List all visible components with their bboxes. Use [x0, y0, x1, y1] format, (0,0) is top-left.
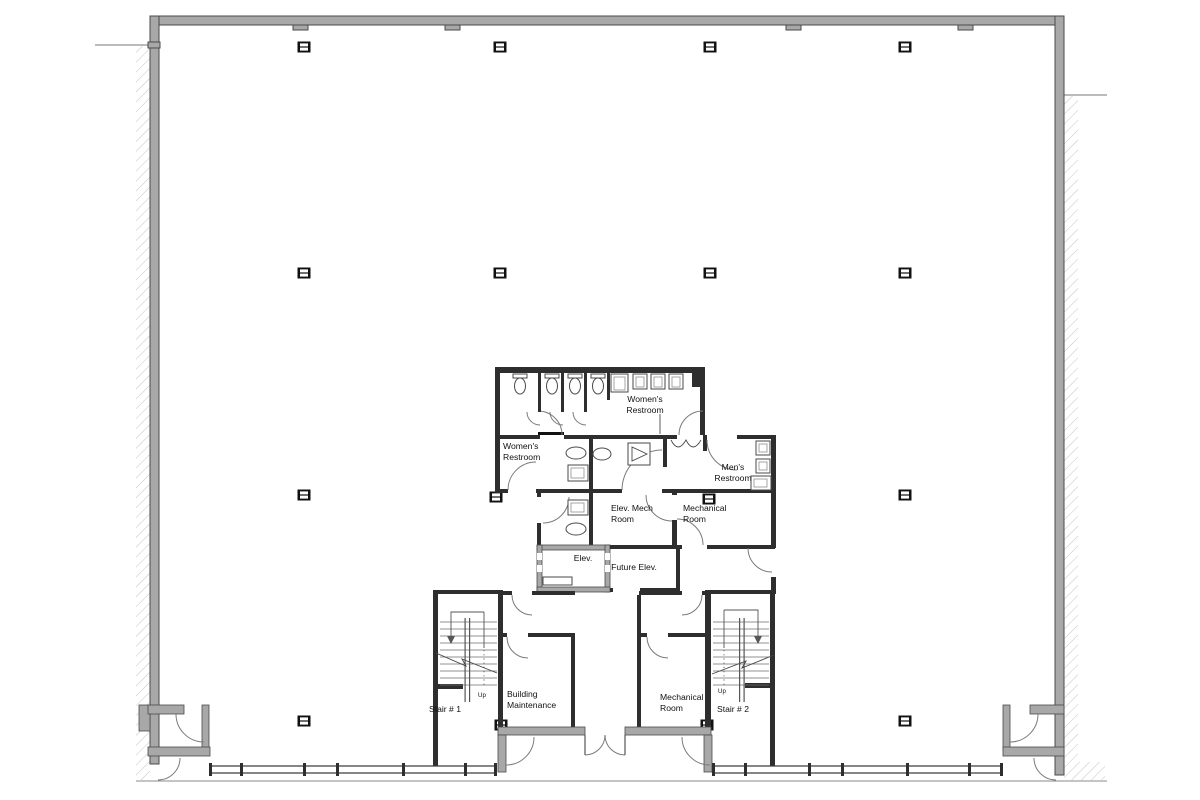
entry-wall-west	[498, 727, 585, 735]
stair-2-up-label: Up	[718, 688, 726, 695]
room-label-womens-restroom-left: Women's	[503, 441, 538, 451]
elevator-door-slot	[605, 565, 610, 572]
column-icon	[490, 492, 503, 503]
column-icon	[298, 42, 311, 53]
vestibule-door-arc	[1034, 758, 1056, 780]
stall-partition	[607, 373, 610, 400]
toilet-icon	[545, 374, 559, 378]
room-label-womens-restroom-top: Women's	[627, 394, 662, 404]
room-label-mechanical-room-upper: Room	[683, 514, 706, 524]
partition	[663, 437, 667, 467]
door-arc	[647, 637, 668, 658]
room-label-mechanical-room-upper: Mechanical	[683, 503, 727, 513]
column-icon	[899, 716, 912, 727]
room-label-mechanical-room-lower: Room	[660, 703, 683, 713]
room-label-future-elevator: Future Elev.	[611, 562, 657, 572]
stall-partition	[561, 373, 564, 412]
exterior-wall-top	[150, 16, 1063, 25]
stair-rail	[744, 618, 745, 702]
room-label-womens-restroom-top: Restroom	[626, 405, 663, 415]
stall-door-arc	[527, 412, 540, 425]
column-icon	[899, 490, 912, 501]
column-icon	[298, 716, 311, 727]
toilet-icon	[568, 374, 582, 378]
toilet-icon	[515, 378, 526, 394]
stair-direction-line	[451, 612, 484, 638]
elevator-door-slot	[605, 553, 610, 560]
toilet-icon	[591, 374, 605, 378]
elevator-shaft	[537, 545, 680, 592]
column-icon	[298, 268, 311, 279]
stair-rail	[469, 618, 470, 702]
room-label-building-maintenance: Building	[507, 689, 538, 699]
room-label-elev-mech-room: Elev. Mech	[611, 503, 653, 513]
vestibule-door-arc	[1010, 714, 1038, 742]
door-arc	[748, 548, 772, 572]
south-entry	[498, 727, 712, 772]
pilaster	[786, 25, 801, 30]
column-icon	[298, 490, 311, 501]
room-label-elev-mech-room: Room	[611, 514, 634, 524]
basin-icon	[593, 448, 611, 460]
column-grid	[298, 42, 912, 731]
wall-jog-left	[148, 42, 160, 48]
pilaster	[293, 25, 308, 30]
room-label-mens-restroom: Restroom	[714, 473, 751, 483]
room-label-elevator: Elev.	[574, 553, 592, 563]
stair-2: Up	[712, 610, 774, 702]
exterior-wall-right	[1055, 16, 1064, 775]
elevator-door-slot	[537, 553, 542, 560]
entry-door-arc-right	[605, 735, 625, 755]
basin-icon	[566, 523, 586, 535]
elevator-door-slot	[537, 565, 542, 572]
door-arc	[682, 595, 702, 615]
elevator-cab	[543, 577, 572, 585]
stall-door-arc	[573, 412, 586, 425]
door-arc	[512, 595, 532, 615]
stall-partition	[538, 373, 541, 412]
entry-door-arc-left	[585, 735, 605, 755]
toilet-icon	[570, 378, 581, 394]
door-arc	[508, 462, 536, 490]
exterior-wall-left	[150, 16, 159, 764]
grade-hatch	[95, 45, 1107, 781]
room-label-mens-restroom: Men's	[722, 462, 745, 472]
stair-direction-line	[724, 610, 758, 638]
stair-rail	[739, 618, 740, 702]
room-label-stair-1: Stair # 1	[429, 704, 461, 714]
stair-1-up-label: Up	[478, 692, 486, 699]
door-arc	[679, 411, 703, 435]
column-icon	[494, 268, 507, 279]
stall-partition	[584, 373, 587, 412]
pilaster	[958, 25, 973, 30]
column-icon	[899, 268, 912, 279]
column-icon	[704, 42, 717, 53]
storefront-windows	[209, 763, 1003, 776]
column-icon	[494, 42, 507, 53]
screen-scallop	[671, 440, 701, 447]
entry-wall-east	[625, 727, 711, 735]
pilaster	[445, 25, 460, 30]
door-arc	[543, 497, 569, 523]
toilet-icon	[547, 378, 558, 394]
column-icon	[704, 268, 717, 279]
toilet-icon	[513, 374, 527, 378]
floor-plan: Up Up	[0, 0, 1200, 800]
door-arc	[507, 637, 528, 658]
toilet-icon	[593, 378, 604, 394]
stair-break-line	[436, 653, 497, 673]
room-label-mechanical-room-lower: Mechanical	[660, 692, 704, 702]
exterior-walls	[148, 16, 1064, 775]
stall-door-arc	[550, 412, 563, 425]
column-icon	[899, 42, 912, 53]
alcove-door-arc-left	[506, 737, 534, 765]
room-label-womens-restroom-left: Restroom	[503, 452, 540, 462]
vestibule-door-arc	[158, 758, 180, 780]
room-label-stair-2: Stair # 2	[717, 704, 749, 714]
vestibule-door-arc	[176, 714, 204, 742]
floor-plan-drawing: Up Up	[0, 0, 1200, 800]
basin-icon	[566, 447, 586, 459]
room-label-building-maintenance: Maintenance	[507, 700, 556, 710]
